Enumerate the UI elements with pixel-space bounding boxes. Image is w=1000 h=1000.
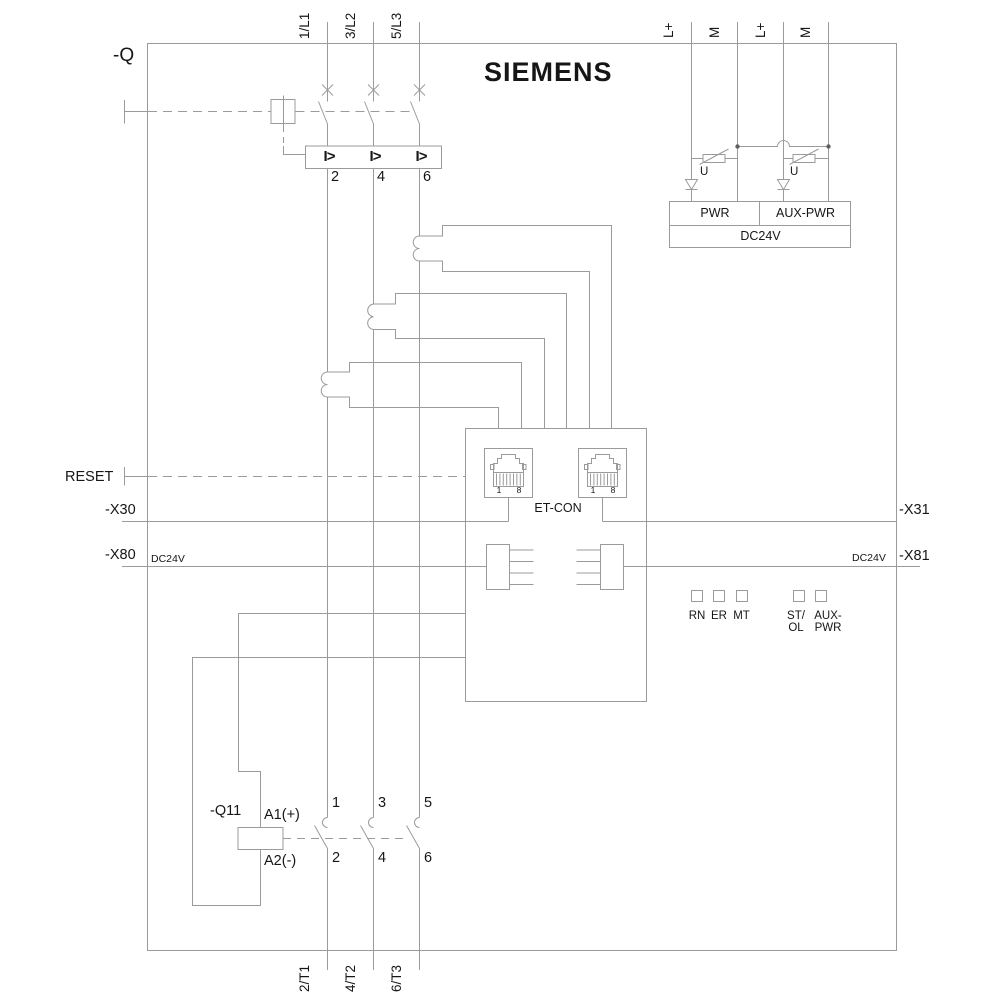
terminal-label-1L1: 1/L1 (298, 12, 312, 38)
dc24v-left-label: DC24V (151, 554, 185, 565)
supply-label-lplus-2: L+ (754, 23, 768, 38)
junction-dot (826, 144, 830, 148)
led-mt (737, 591, 748, 602)
x80-label: -X80 (105, 548, 136, 563)
schematic-page: SIEMENS -Q 1/L1 3/L2 5/L3 L+ M L+ M 2/T1… (0, 0, 1000, 1000)
diode-aux (778, 180, 790, 190)
trip-symbol-2: I> (363, 149, 387, 165)
contactor-coil (238, 828, 283, 850)
breaker-output-4: 4 (377, 170, 385, 185)
breaker-pole-1 (319, 22, 334, 372)
breaker-output-6: 6 (423, 170, 431, 185)
aux-pwr-label: AUX-PWR (760, 207, 851, 220)
dc24v-box-label: DC24V (670, 230, 851, 243)
dc24v-right-label: DC24V (852, 553, 886, 564)
led-label-rn: RN (687, 611, 707, 623)
supply-label-lplus-1: L+ (662, 23, 676, 38)
x31-label: -X31 (899, 503, 930, 518)
trip-symbol-3: I> (409, 149, 433, 165)
supply-label-m-1: M (708, 27, 722, 38)
led-er (714, 591, 725, 602)
contact-terminal-2: 2 (332, 851, 340, 866)
contactor-contact-1 (315, 818, 328, 971)
contact-terminal-5: 5 (424, 796, 432, 811)
led-label-st: ST/ (784, 611, 808, 623)
terminal-label-3L2: 3/L2 (344, 12, 358, 38)
terminal-block-right (577, 545, 624, 590)
device-designation: -Q (113, 46, 134, 66)
varistor-aux (784, 149, 829, 165)
reset-label: RESET (65, 470, 113, 485)
wiring-diagram-svg (0, 0, 1000, 1000)
led-label-er: ER (709, 611, 729, 623)
rj45-right-pin8-label: 8 (609, 486, 617, 495)
contact-terminal-1: 1 (332, 796, 340, 811)
led-rn (692, 591, 703, 602)
led-label-ol: OL (784, 623, 808, 635)
led-indicators (692, 591, 827, 602)
reset-line (125, 467, 466, 486)
siemens-logo: SIEMENS (484, 58, 613, 86)
led-aux-pwr (816, 591, 827, 602)
terminal-label-6T3: 6/T3 (390, 965, 404, 992)
terminal-label-2T1: 2/T1 (298, 965, 312, 992)
x81-label: -X81 (899, 549, 930, 564)
rj45-left-pin1-label: 1 (495, 486, 503, 495)
current-transformer-L3 (413, 226, 611, 429)
bus-lines (122, 522, 920, 567)
pwr-label: PWR (670, 207, 760, 220)
terminal-label-5L3: 5/L3 (390, 12, 404, 38)
rj45-jack-left (485, 449, 533, 522)
contactor-designation: -Q11 (210, 804, 241, 819)
rj45-right-pin1-label: 1 (589, 486, 597, 495)
contactor-contact-2 (361, 818, 374, 971)
junction-dot (735, 144, 739, 148)
current-transformer-L2 (368, 294, 567, 429)
breaker-output-2: 2 (331, 170, 339, 185)
varistor-u-label-2: U (790, 166, 798, 178)
supply-label-m-2: M (799, 27, 813, 38)
diode-pwr (686, 180, 698, 190)
contact-terminal-6: 6 (424, 851, 432, 866)
trip-symbol-1: I> (317, 149, 341, 165)
coil-a1-label: A1(+) (264, 808, 300, 823)
x30-label: -X30 (105, 503, 136, 518)
terminal-label-4T2: 4/T2 (344, 965, 358, 992)
varistor-pwr (692, 149, 738, 165)
rj45-left-pin8-label: 8 (515, 486, 523, 495)
led-st-ol (794, 591, 805, 602)
coil-a2-label: A2(-) (264, 854, 296, 869)
led-label-mt: MT (731, 611, 752, 623)
led-label-pwr: PWR (811, 623, 845, 635)
contact-terminal-4: 4 (378, 851, 386, 866)
varistor-u-label-1: U (700, 166, 708, 178)
led-label-aux: AUX- (811, 611, 845, 623)
contact-terminal-3: 3 (378, 796, 386, 811)
terminal-block-left (487, 545, 534, 590)
et-con-label: ET-CON (527, 502, 589, 515)
contactor-contact-3 (407, 818, 420, 971)
breaker-pole-3 (411, 22, 426, 236)
